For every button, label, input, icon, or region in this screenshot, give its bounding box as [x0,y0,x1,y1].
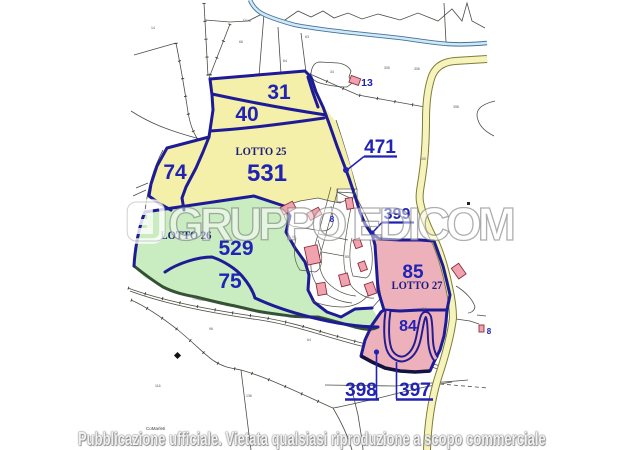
svg-text:398: 398 [345,380,377,401]
svg-text:96: 96 [209,327,213,331]
svg-text:74: 74 [163,161,187,184]
svg-text:34: 34 [330,70,334,74]
svg-text:84: 84 [422,307,426,311]
svg-text:397: 397 [399,380,431,401]
svg-text:100: 100 [420,157,426,161]
svg-text:31: 31 [267,81,291,104]
svg-text:136: 136 [246,394,252,398]
svg-text:64: 64 [283,59,287,63]
svg-text:40: 40 [235,103,258,126]
svg-text:398: 398 [453,105,459,109]
svg-text:64: 64 [307,338,311,342]
svg-text:GRUPPO EDICOM: GRUPPO EDICOM [168,198,516,250]
svg-text:75: 75 [218,270,242,293]
svg-text:116: 116 [155,384,161,388]
svg-text:8: 8 [487,327,492,336]
svg-text:63: 63 [305,35,309,39]
svg-text:531: 531 [247,160,287,187]
svg-text:LOTTO 27: LOTTO 27 [392,280,443,292]
svg-text:14: 14 [151,26,155,30]
svg-text:306: 306 [414,67,420,71]
svg-text:471: 471 [364,137,396,158]
svg-text:66: 66 [239,40,243,44]
svg-text:85: 85 [345,255,349,259]
svg-text:305: 305 [384,66,390,70]
svg-text:13: 13 [361,77,373,89]
svg-text:LOTTO 25: LOTTO 25 [236,146,287,158]
svg-text:84: 84 [399,318,417,335]
